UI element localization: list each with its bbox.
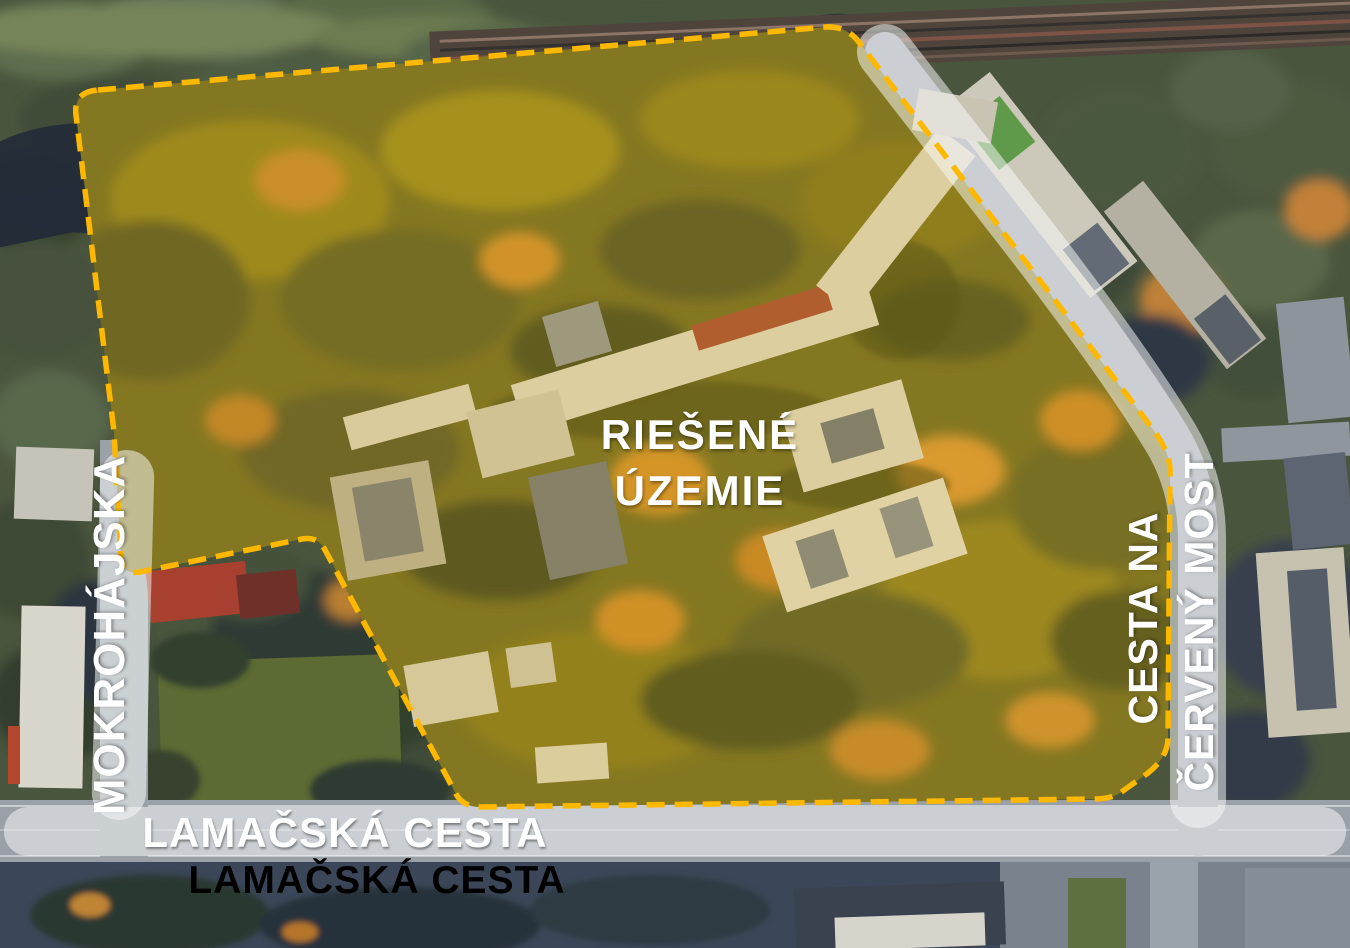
area-label-line2: ÚZEMIE [615,466,786,514]
area-label-line1: RIEŠENÉ [601,410,799,458]
aerial-map: MOKROHÁJSKA CESTA NA ČERVENÝ MOST RIEŠEN… [0,0,1350,948]
road-label-lamacska-on-road: LAMAČSKÁ CESTA [142,808,547,856]
road-label-cesta-na: CESTA NA [1120,512,1166,725]
road-label-cerveny-most: ČERVENÝ MOST [1176,452,1222,791]
aerial-map-canvas: MOKROHÁJSKA CESTA NA ČERVENÝ MOST RIEŠEN… [0,0,1350,948]
road-label-mokrohajska: MOKROHÁJSKA [84,455,134,816]
road-label-lamacska-below-road: LAMAČSKÁ CESTA [188,857,565,902]
